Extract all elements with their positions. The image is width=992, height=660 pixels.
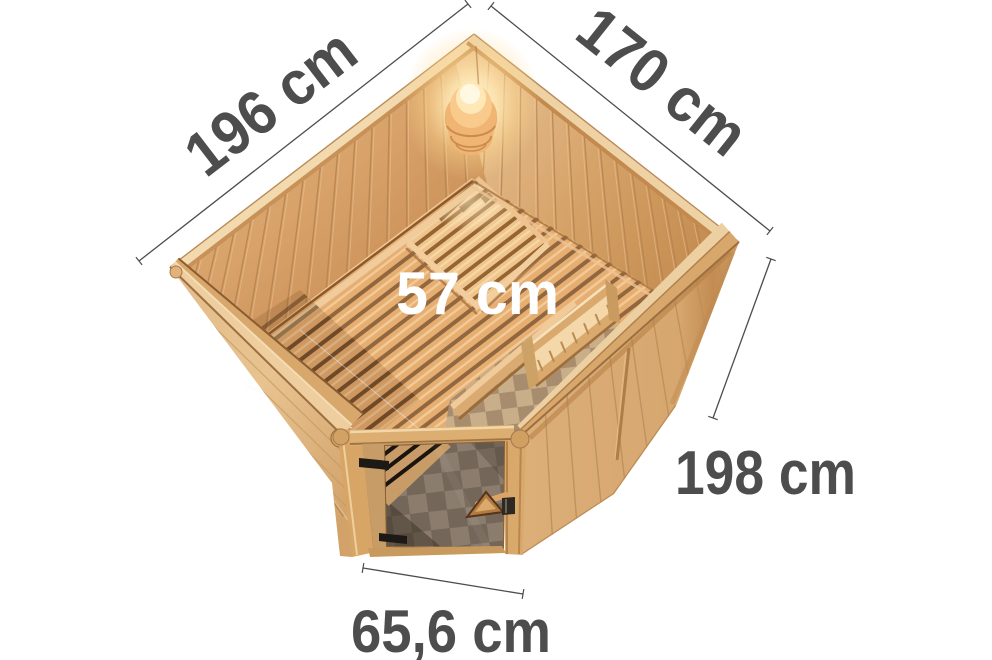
svg-text:198 cm: 198 cm	[675, 439, 856, 508]
svg-text:65,6 cm: 65,6 cm	[351, 598, 551, 660]
svg-text:57 cm: 57 cm	[396, 260, 559, 327]
